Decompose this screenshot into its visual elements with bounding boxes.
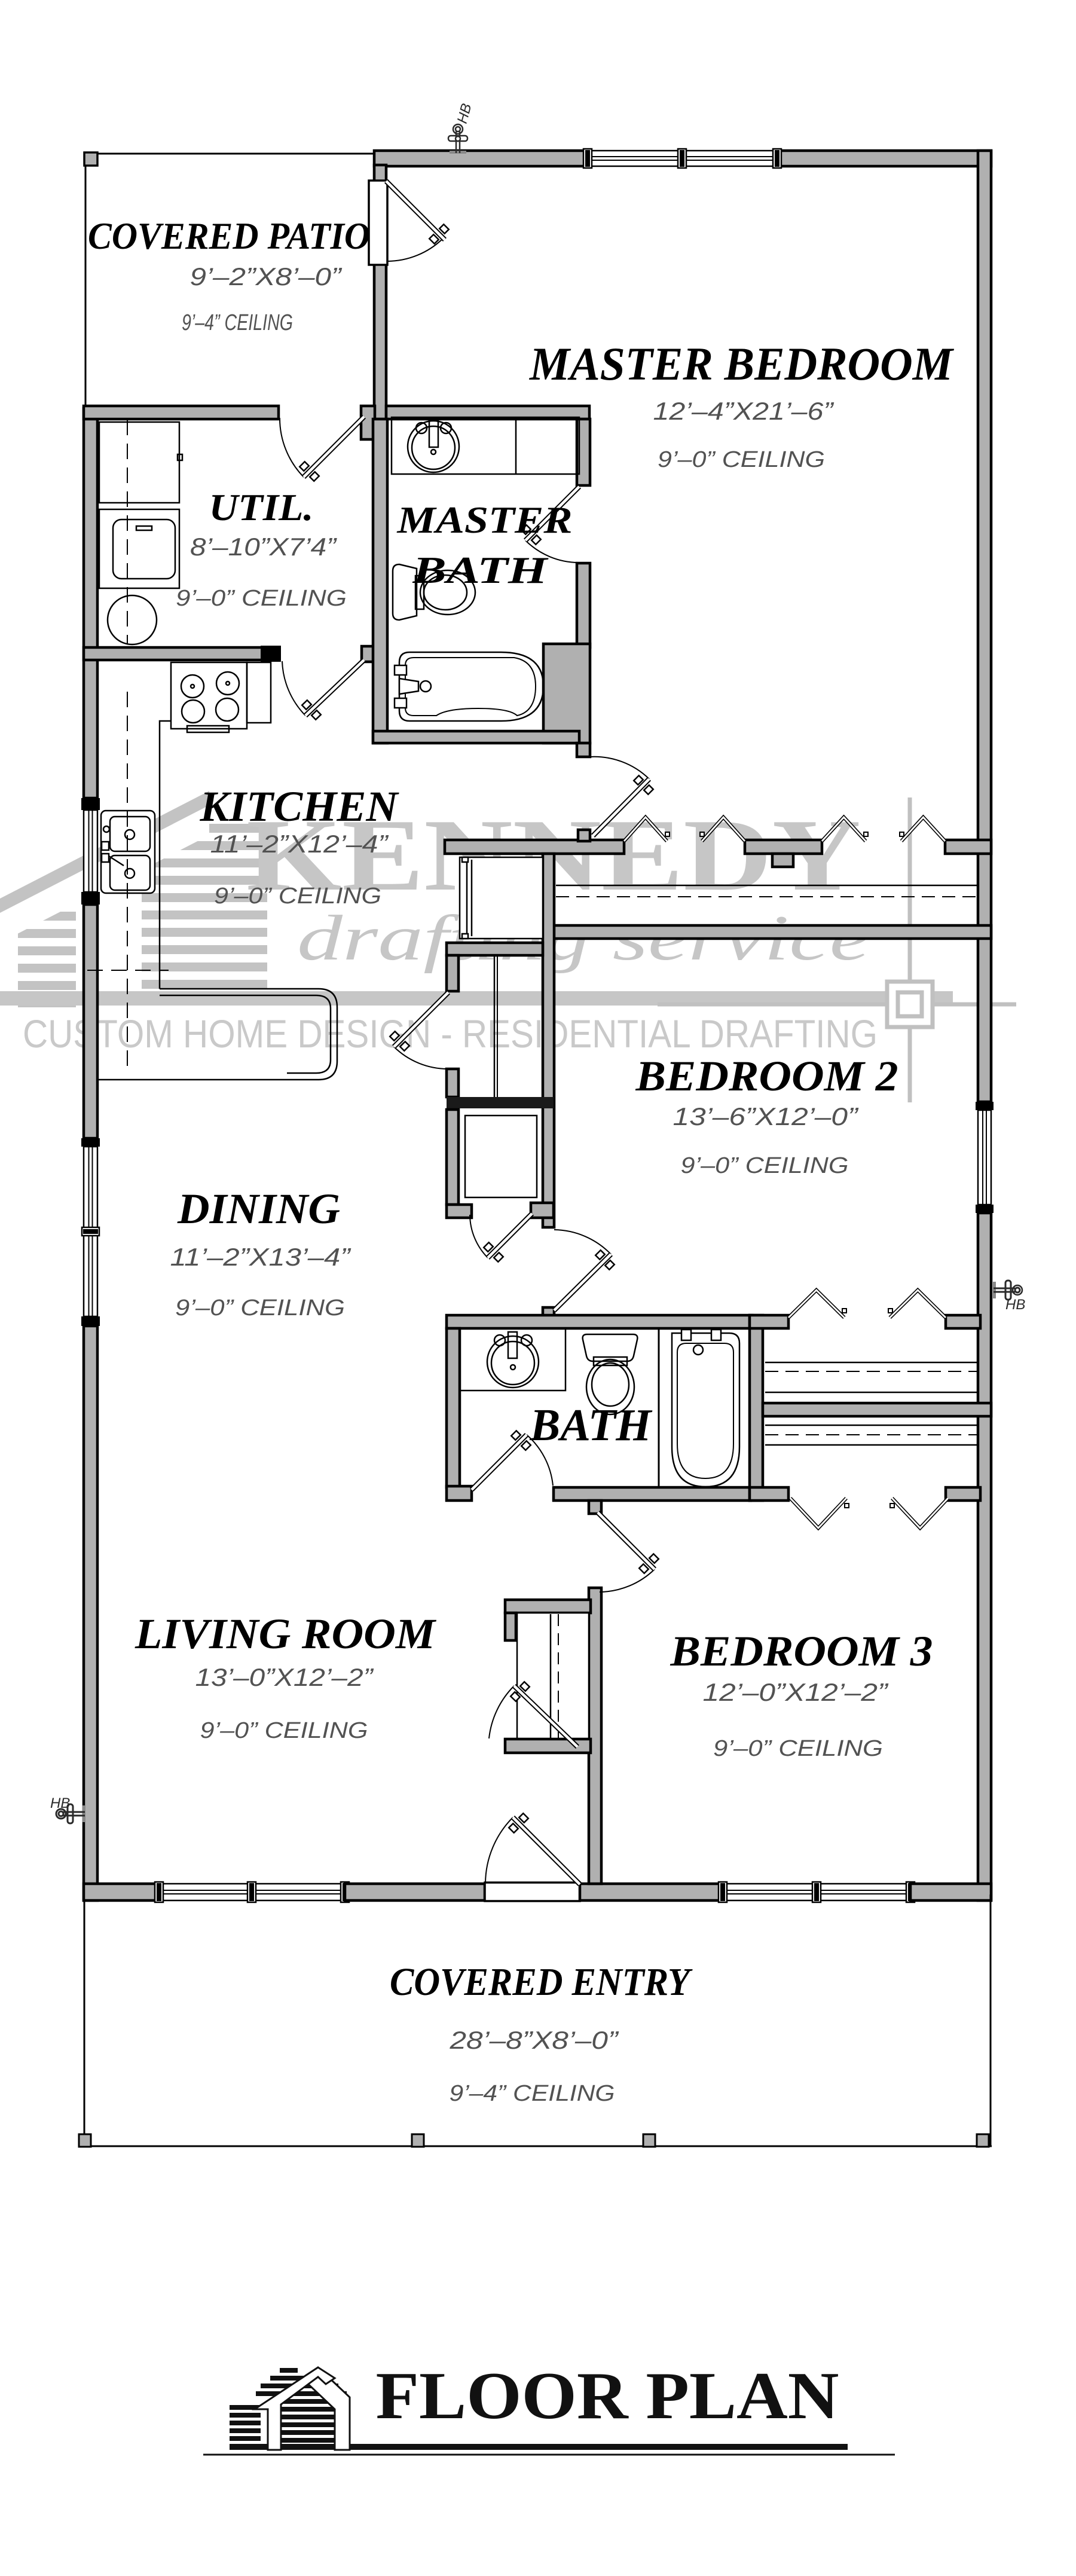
svg-text:BEDROOM 3: BEDROOM 3 bbox=[670, 1627, 933, 1675]
svg-text:9’–0” CEILING: 9’–0” CEILING bbox=[200, 1718, 368, 1743]
svg-text:8’–10”X7’4”: 8’–10”X7’4” bbox=[190, 533, 337, 561]
svg-text:9’–0” CEILING: 9’–0” CEILING bbox=[176, 586, 347, 611]
svg-text:LIVING ROOM: LIVING ROOM bbox=[134, 1610, 437, 1658]
svg-text:13’–6”X12’–0”: 13’–6”X12’–0” bbox=[673, 1102, 859, 1130]
svg-text:DINING: DINING bbox=[177, 1185, 340, 1233]
svg-text:FLOOR PLAN: FLOOR PLAN bbox=[376, 2359, 839, 2433]
svg-text:11’–2”X13’–4”: 11’–2”X13’–4” bbox=[170, 1243, 351, 1271]
svg-text:BATH: BATH bbox=[412, 549, 549, 591]
svg-text:MASTER BEDROOM: MASTER BEDROOM bbox=[528, 338, 955, 390]
svg-text:HB: HB bbox=[1005, 1297, 1025, 1313]
svg-text:KITCHEN: KITCHEN bbox=[199, 783, 399, 830]
svg-text:BATH: BATH bbox=[529, 1400, 653, 1450]
svg-text:HB: HB bbox=[50, 1795, 70, 1811]
svg-text:12’–4”X21’–6”: 12’–4”X21’–6” bbox=[653, 397, 834, 425]
svg-text:UTIL.: UTIL. bbox=[209, 486, 314, 528]
svg-text:COVERED PATIO: COVERED PATIO bbox=[88, 215, 370, 257]
svg-text:9’–4” CEILING: 9’–4” CEILING bbox=[450, 2081, 615, 2106]
svg-text:BEDROOM 2: BEDROOM 2 bbox=[635, 1052, 898, 1100]
svg-text:CUSTOM HOME DESIGN - RESIDENTI: CUSTOM HOME DESIGN - RESIDENTIAL DRAFTIN… bbox=[23, 1012, 878, 1056]
svg-text:9’–0” CEILING: 9’–0” CEILING bbox=[214, 884, 381, 909]
svg-text:13’–0”X12’–2”: 13’–0”X12’–2” bbox=[195, 1663, 374, 1691]
svg-text:28’–8”X8’–0”: 28’–8”X8’–0” bbox=[449, 2026, 619, 2054]
svg-text:9’–0” CEILING: 9’–0” CEILING bbox=[658, 447, 825, 472]
svg-text:MASTER: MASTER bbox=[396, 499, 572, 541]
svg-text:12’–0”X12’–2”: 12’–0”X12’–2” bbox=[703, 1678, 889, 1706]
svg-text:9’–2”X8’–0”: 9’–2”X8’–0” bbox=[190, 262, 343, 291]
svg-text:9’–0” CEILING: 9’–0” CEILING bbox=[713, 1736, 883, 1761]
svg-text:COVERED ENTRY: COVERED ENTRY bbox=[390, 1960, 693, 2004]
svg-text:9’–0” CEILING: 9’–0” CEILING bbox=[681, 1153, 849, 1178]
svg-text:9’–0” CEILING: 9’–0” CEILING bbox=[175, 1295, 345, 1321]
svg-text:9’–4” CEILING: 9’–4” CEILING bbox=[182, 310, 293, 335]
svg-text:11’–2”X12’–4”: 11’–2”X12’–4” bbox=[210, 830, 389, 858]
